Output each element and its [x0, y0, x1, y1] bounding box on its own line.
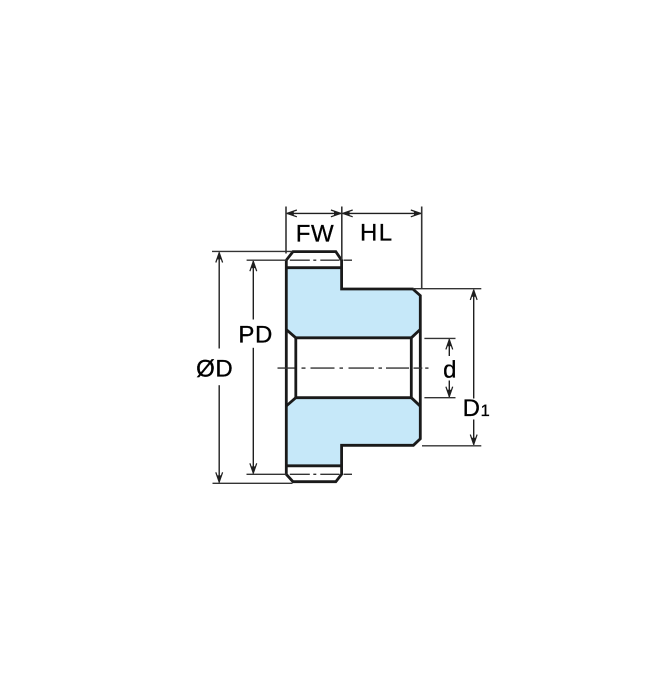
svg-text:FW: FW [296, 221, 335, 248]
svg-text:d: d [443, 357, 456, 384]
svg-text:ØD: ØD [196, 356, 233, 383]
svg-text:PD: PD [238, 322, 273, 349]
svg-text:HL: HL [360, 220, 394, 247]
